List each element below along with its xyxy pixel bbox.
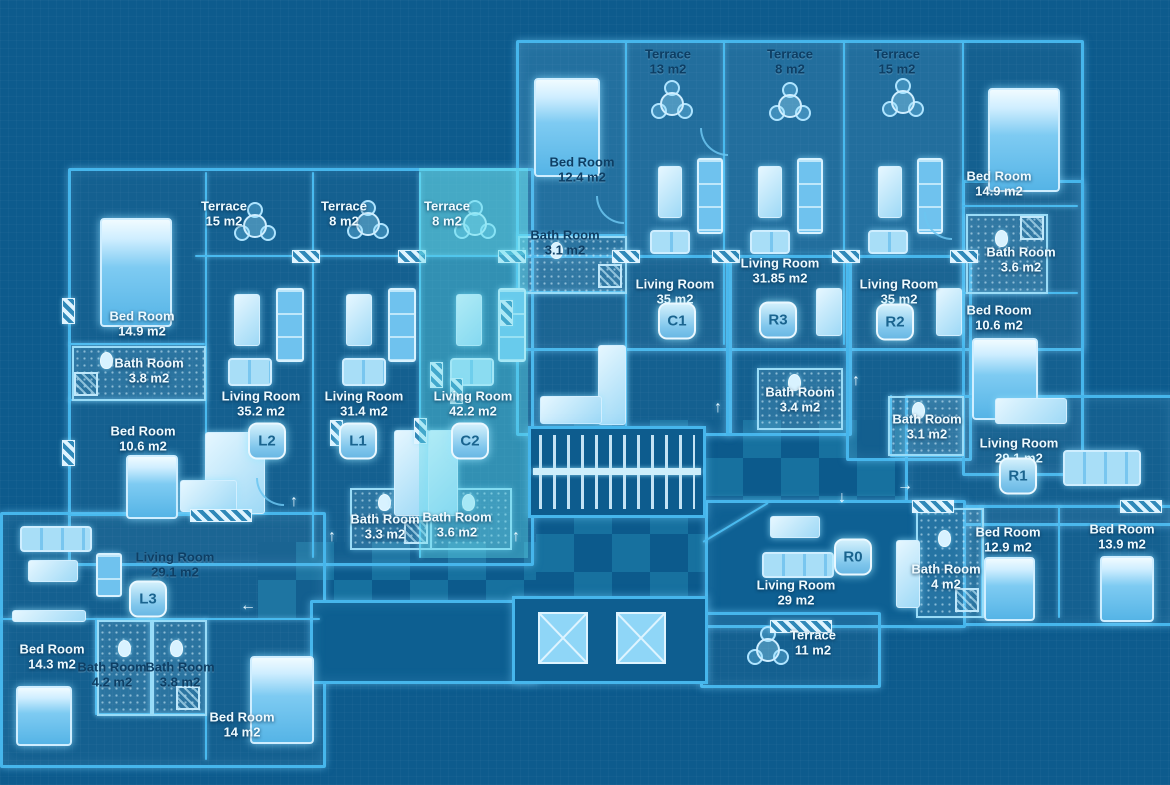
shower-icon bbox=[598, 264, 622, 288]
entry-arrow-up: ↑ bbox=[714, 399, 722, 417]
cabinet bbox=[96, 553, 122, 597]
bed bbox=[126, 455, 178, 519]
wall-hatch bbox=[612, 250, 640, 263]
sofa bbox=[1063, 450, 1141, 486]
table bbox=[456, 294, 482, 346]
wall-segment bbox=[195, 255, 528, 257]
wall-hatch bbox=[832, 250, 860, 263]
sofa bbox=[650, 230, 690, 254]
wardrobe bbox=[697, 158, 723, 234]
room-label-bathroom-3-8-bottom: Bath Room3.8 m2 bbox=[145, 660, 214, 691]
room-label-bedroom-14-9-right: Bed Room14.9 m2 bbox=[967, 169, 1032, 200]
block-storage bbox=[310, 600, 538, 684]
wall-hatch bbox=[1120, 500, 1162, 513]
kitchen-counter bbox=[816, 288, 842, 336]
table bbox=[346, 294, 372, 346]
entry-arrow-up: ↑ bbox=[852, 372, 860, 390]
wall-segment bbox=[723, 42, 725, 345]
wall-hatch bbox=[398, 250, 426, 263]
shower-icon bbox=[74, 372, 98, 396]
wall-hatch bbox=[712, 250, 740, 263]
unit-badge-r1[interactable]: R1 bbox=[999, 458, 1037, 495]
room-label-bedroom-14-3: Bed Room14.3 m2 bbox=[20, 642, 85, 673]
room-label-terrace-top-2: Terrace8 m2 bbox=[767, 47, 813, 78]
toilet-icon bbox=[378, 494, 391, 511]
room-label-living-r0: Living Room29 m2 bbox=[757, 578, 836, 609]
entry-arrow-up: ↑ bbox=[328, 528, 336, 546]
table bbox=[770, 516, 820, 538]
wall-segment bbox=[312, 172, 314, 558]
wall-hatch bbox=[292, 250, 320, 263]
terrace-table-icon bbox=[648, 78, 696, 126]
table bbox=[658, 166, 682, 218]
wall-hatch bbox=[430, 362, 443, 388]
table bbox=[234, 294, 260, 346]
toilet-icon bbox=[462, 494, 475, 511]
wardrobe bbox=[797, 158, 823, 234]
staircase bbox=[528, 426, 706, 518]
wall-hatch bbox=[62, 440, 75, 466]
kitchen-counter bbox=[936, 288, 962, 336]
room-label-living-r3: Living Room31.85 m2 bbox=[741, 256, 820, 287]
sofa bbox=[342, 358, 386, 386]
wall-segment bbox=[962, 205, 1078, 207]
room-label-terrace-bottom: Terrace11 m2 bbox=[790, 628, 836, 659]
wall-hatch bbox=[500, 300, 513, 326]
entry-arrow-down: ↓ bbox=[838, 489, 846, 507]
table bbox=[758, 166, 782, 218]
terrace-table-icon bbox=[766, 80, 814, 128]
wall-segment bbox=[962, 42, 964, 345]
room-label-terrace-top-3: Terrace15 m2 bbox=[874, 47, 920, 78]
room-label-terrace-c2: Terrace8 m2 bbox=[424, 199, 470, 230]
toilet-icon bbox=[100, 352, 113, 369]
room-label-bedroom-14: Bed Room14 m2 bbox=[210, 710, 275, 741]
room-label-bathroom-3-1-c1: Bath Room3.1 m2 bbox=[530, 228, 599, 259]
room-label-bathroom-3-8-left: Bath Room3.8 m2 bbox=[114, 356, 183, 387]
entry-arrow-right: → bbox=[897, 477, 913, 495]
wall-hatch bbox=[950, 250, 978, 263]
room-label-terrace-left-2: Terrace8 m2 bbox=[321, 199, 367, 230]
room-label-bedroom-14-9-left: Bed Room14.9 m2 bbox=[110, 309, 175, 340]
room-label-bedroom-12-4: Bed Room12.4 m2 bbox=[550, 155, 615, 186]
bed bbox=[16, 686, 72, 746]
sofa bbox=[868, 230, 908, 254]
unit-badge-l1[interactable]: L1 bbox=[339, 423, 377, 460]
elevator-shaft bbox=[512, 596, 708, 684]
room-label-bedroom-13-9: Bed Room13.9 m2 bbox=[1090, 522, 1155, 553]
wall-segment bbox=[843, 42, 845, 345]
wall-hatch bbox=[190, 509, 252, 522]
room-label-living-l2: Living Room35.2 m2 bbox=[222, 389, 301, 420]
stair-rail bbox=[533, 468, 701, 475]
room-label-bathroom-3-6-right: Bath Room3.6 m2 bbox=[986, 245, 1055, 276]
entry-arrow-left: ← bbox=[240, 597, 256, 615]
bed bbox=[1100, 556, 1154, 622]
unit-badge-c2[interactable]: C2 bbox=[451, 423, 489, 460]
table bbox=[878, 166, 902, 218]
sofa bbox=[762, 552, 834, 578]
room-label-bathroom-3-4: Bath Room3.4 m2 bbox=[765, 385, 834, 416]
shower-icon bbox=[1020, 216, 1044, 240]
room-label-bathroom-3-1-r2: Bath Room3.1 m2 bbox=[892, 412, 961, 443]
sofa bbox=[20, 526, 92, 552]
room-label-living-l3: Living Room29.1 m2 bbox=[136, 550, 215, 581]
unit-badge-r0[interactable]: R0 bbox=[834, 539, 872, 576]
room-label-bathroom-3-6-c2: Bath Room3.6 m2 bbox=[422, 510, 491, 541]
room-label-terrace-top-1: Terrace13 m2 bbox=[645, 47, 691, 78]
entry-arrow-up: ↑ bbox=[290, 493, 298, 511]
unit-badge-l2[interactable]: L2 bbox=[248, 423, 286, 460]
terrace-table-icon bbox=[879, 76, 927, 124]
wall-hatch bbox=[912, 500, 954, 513]
room-label-bedroom-10-6-right: Bed Room10.6 m2 bbox=[967, 303, 1032, 334]
toilet-icon bbox=[118, 640, 131, 657]
bed bbox=[984, 557, 1035, 621]
kitchen-counter bbox=[540, 396, 602, 424]
unit-badge-r3[interactable]: R3 bbox=[759, 302, 797, 339]
room-label-bathroom-3-3: Bath Room3.3 m2 bbox=[350, 512, 419, 543]
wall-segment bbox=[625, 42, 627, 255]
wall-hatch bbox=[498, 250, 526, 263]
tv-bench bbox=[12, 610, 86, 622]
wall-segment bbox=[68, 343, 205, 345]
room-label-living-c2: Living Room42.2 m2 bbox=[434, 389, 513, 420]
room-label-bedroom-12-9: Bed Room12.9 m2 bbox=[976, 525, 1041, 556]
sofa bbox=[228, 358, 272, 386]
kitchen-counter bbox=[180, 480, 237, 512]
wall-hatch bbox=[62, 298, 75, 324]
floor-plan: ↑ ↑ ↑ ↑ ↑ → ← ↓ Terrace15 m2 Terrace8 m2… bbox=[0, 0, 1170, 785]
wall-hatch bbox=[414, 418, 427, 444]
unit-badge-c1[interactable]: C1 bbox=[658, 303, 696, 340]
room-label-bedroom-10-6-left: Bed Room10.6 m2 bbox=[111, 424, 176, 455]
room-label-living-l1: Living Room31.4 m2 bbox=[325, 389, 404, 420]
wardrobe bbox=[388, 288, 416, 362]
toilet-icon bbox=[170, 640, 183, 657]
elevator-icon bbox=[615, 611, 667, 665]
toilet-icon bbox=[938, 530, 951, 547]
table bbox=[28, 560, 78, 582]
unit-badge-r2[interactable]: R2 bbox=[876, 304, 914, 341]
room-label-terrace-left-1: Terrace15 m2 bbox=[201, 199, 247, 230]
room-label-bathroom-4-2: Bath Room4.2 m2 bbox=[77, 660, 146, 691]
cabinet bbox=[995, 398, 1067, 424]
sofa bbox=[750, 230, 790, 254]
kitchen-counter bbox=[598, 345, 626, 425]
unit-badge-l3[interactable]: L3 bbox=[129, 581, 167, 618]
elevator-icon bbox=[537, 611, 589, 665]
wardrobe bbox=[276, 288, 304, 362]
room-label-bathroom-4: Bath Room4 m2 bbox=[911, 562, 980, 593]
entry-arrow-up: ↑ bbox=[512, 528, 520, 546]
wall-segment bbox=[1058, 505, 1060, 618]
